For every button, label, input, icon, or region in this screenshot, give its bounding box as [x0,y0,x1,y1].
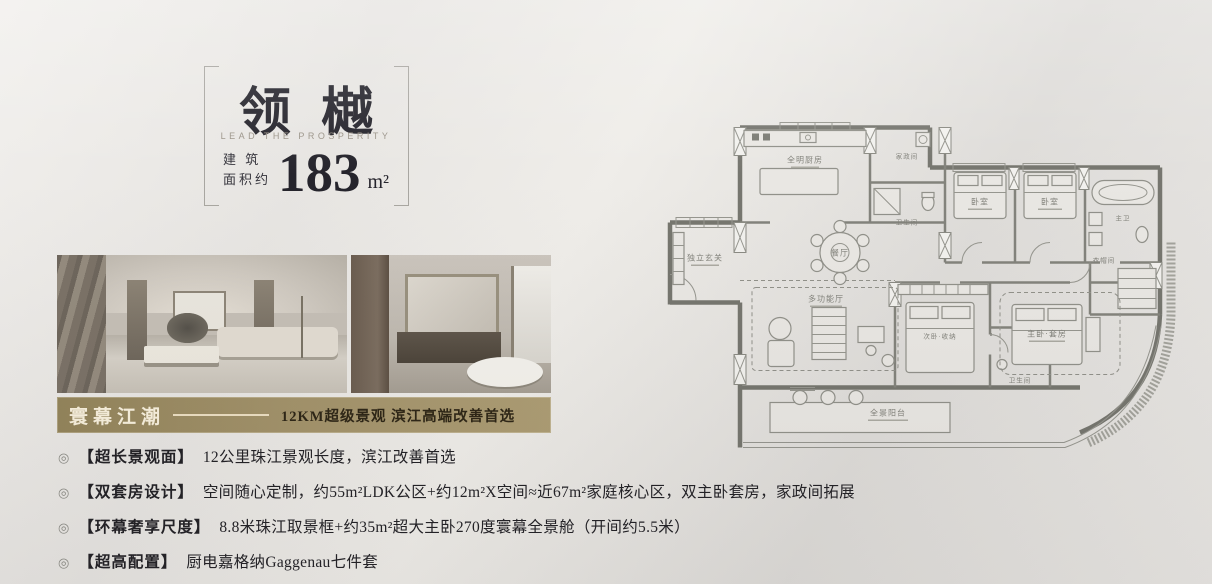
floor-plan: 全明厨房 家政间 卫生间 餐厅 独立玄关 卧室 卧室 主卫 衣帽间 多功能厅 次… [640,100,1210,455]
master-bath-fixtures [1089,181,1154,246]
area-row: 建 筑 面积约 183 m² [200,147,412,199]
room-label-balcony: 全景阳台 [870,408,906,418]
bathroom-photo [351,255,551,393]
room-label-bedroom1: 卧室 [971,197,989,207]
banner-dash [173,414,269,416]
room-label-bedroom2: 卧室 [1041,197,1059,207]
bullet-tag: 【环幕奢享尺度】 [78,517,210,539]
bullet-row-3: ◎ 【环幕奢享尺度】 8.8米珠江取景框+约35m²超大主卧270度寰幕全景舱（… [58,517,855,539]
marble-wall [57,255,106,393]
poster: 领樾 LEAD THE PROSPERITY 建 筑 面积约 183 m² [0,0,1212,584]
area-value: 183 [278,147,361,199]
room-label-foyer: 独立玄关 [687,253,723,263]
sofa [217,327,339,357]
area-prefix-line1: 建 筑 [223,150,271,170]
area-prefix: 建 筑 面积约 [223,150,271,190]
coffee-table [144,346,219,363]
bullet-tag: 【双套房设计】 [78,482,194,504]
room-label-laundry: 家政间 [896,152,919,161]
ring-bullet-icon: ◎ [58,552,69,574]
bullet-text: 12公里珠江景观长度，滨江改善首选 [203,447,456,469]
bedroom2-bed [1024,173,1076,219]
foyer-cabinet [673,233,684,285]
room-label-dining: 餐厅 [831,249,849,258]
bullet-row-4: ◎ 【超高配置】 厨电嘉格纳Gaggenau七件套 [58,552,855,574]
bullet-text: 空间随心定制，约55m²LDK公区+约12m²X空间≈近67m²家庭核心区，双主… [203,482,855,504]
ring-bullet-icon: ◎ [58,517,69,539]
room-label-kitchen: 全明厨房 [787,155,823,165]
room-label-second-suite: 次卧·收纳 [923,332,956,341]
plant [167,313,208,343]
room-label-master-bath: 主卫 [1116,214,1131,223]
closet-wardrobe [1118,269,1156,309]
bullet-tag: 【超长景观面】 [78,447,194,469]
photo-strip [57,255,551,393]
title-subtitle-en: LEAD THE PROSPERITY [186,131,426,141]
room-label-master-suite: 主卧·套房 [1027,329,1067,339]
feature-banner: 寰幕江潮 12KM超级景观 滨江高端改善首选 [57,397,551,433]
room-label-bath-b: 卫生间 [1009,376,1032,385]
laundry-fixtures [916,133,930,147]
banner-tagline: 12KM超级景观 滨江高端改善首选 [281,405,515,426]
balcony-furniture [770,391,950,433]
ring-bullet-icon: ◎ [58,482,69,504]
mirror [405,274,499,338]
selling-points-list: ◎ 【超长景观面】 12公里珠江景观长度，滨江改善首选 ◎ 【双套房设计】 空间… [58,447,855,584]
living-room-photo [57,255,347,393]
bullet-text: 8.8米珠江取景框+约35m²超大主卧270度寰幕全景舱（开间约5.5米） [219,517,690,539]
banner-title: 寰幕江潮 [69,402,165,429]
area-prefix-line2: 面积约 [223,170,271,190]
bullet-tag: 【超高配置】 [78,552,177,574]
area-unit: m² [367,171,389,194]
floor-lamp [301,296,303,358]
floor-plan-drawing: 全明厨房 家政间 卫生间 餐厅 独立玄关 卧室 卧室 主卫 衣帽间 多功能厅 次… [640,100,1210,455]
bath-window [511,266,551,363]
bullet-row-2: ◎ 【双套房设计】 空间随心定制，约55m²LDK公区+约12m²X空间≈近67… [58,482,855,504]
ring-bullet-icon: ◎ [58,447,69,469]
bedroom1-bed [954,173,1006,219]
room-label-bath-a: 卫生间 [896,218,919,227]
room-label-closet: 衣帽间 [1093,256,1116,265]
second-suite-bed [898,285,988,373]
bathroom-a-fixtures [874,189,934,215]
bullet-text: 厨电嘉格纳Gaggenau七件套 [186,552,378,574]
room-label-flex: 多功能厅 [808,294,844,304]
bath-door [351,255,389,393]
